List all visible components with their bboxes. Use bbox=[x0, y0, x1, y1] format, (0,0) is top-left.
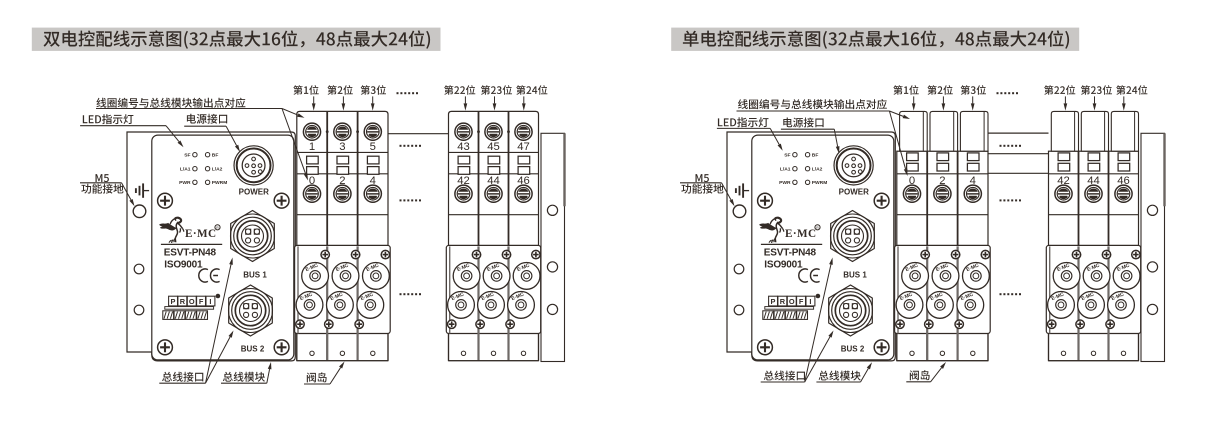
svg-text:45: 45 bbox=[487, 141, 500, 153]
svg-text:5: 5 bbox=[370, 141, 376, 153]
svg-text:ISO9001: ISO9001 bbox=[164, 259, 203, 270]
svg-text:L/A2: L/A2 bbox=[212, 167, 223, 173]
svg-text:3: 3 bbox=[339, 141, 345, 153]
svg-text:PWR: PWR bbox=[179, 180, 191, 186]
svg-text:PWR: PWR bbox=[779, 180, 791, 186]
svg-text:PWRM: PWRM bbox=[212, 180, 227, 186]
svg-text:E·MC: E·MC bbox=[185, 228, 216, 240]
svg-text:POWER: POWER bbox=[239, 188, 269, 197]
svg-text:E·MC: E·MC bbox=[785, 228, 816, 240]
svg-text:ESVT-PN48: ESVT-PN48 bbox=[164, 247, 217, 258]
svg-text:BUS 1: BUS 1 bbox=[243, 271, 267, 280]
svg-text:ISO9001: ISO9001 bbox=[764, 259, 803, 270]
svg-text:PWRM: PWRM bbox=[812, 180, 827, 186]
svg-text:BF: BF bbox=[812, 153, 819, 159]
svg-text:43: 43 bbox=[457, 141, 470, 153]
svg-text:BF: BF bbox=[212, 153, 219, 159]
svg-text:BUS 2: BUS 2 bbox=[841, 344, 865, 353]
svg-text:BUS 1: BUS 1 bbox=[843, 271, 867, 280]
svg-text:47: 47 bbox=[517, 141, 530, 153]
svg-text:1: 1 bbox=[309, 141, 315, 153]
svg-text:SF: SF bbox=[784, 153, 790, 159]
svg-text:SF: SF bbox=[184, 153, 190, 159]
svg-text:POWER: POWER bbox=[839, 188, 869, 197]
svg-text:L/A2: L/A2 bbox=[812, 167, 823, 173]
svg-text:ESVT-PN48: ESVT-PN48 bbox=[764, 247, 817, 258]
svg-text:L/A1: L/A1 bbox=[180, 167, 191, 173]
svg-text:BUS 2: BUS 2 bbox=[241, 344, 265, 353]
svg-text:L/A1: L/A1 bbox=[780, 167, 791, 173]
